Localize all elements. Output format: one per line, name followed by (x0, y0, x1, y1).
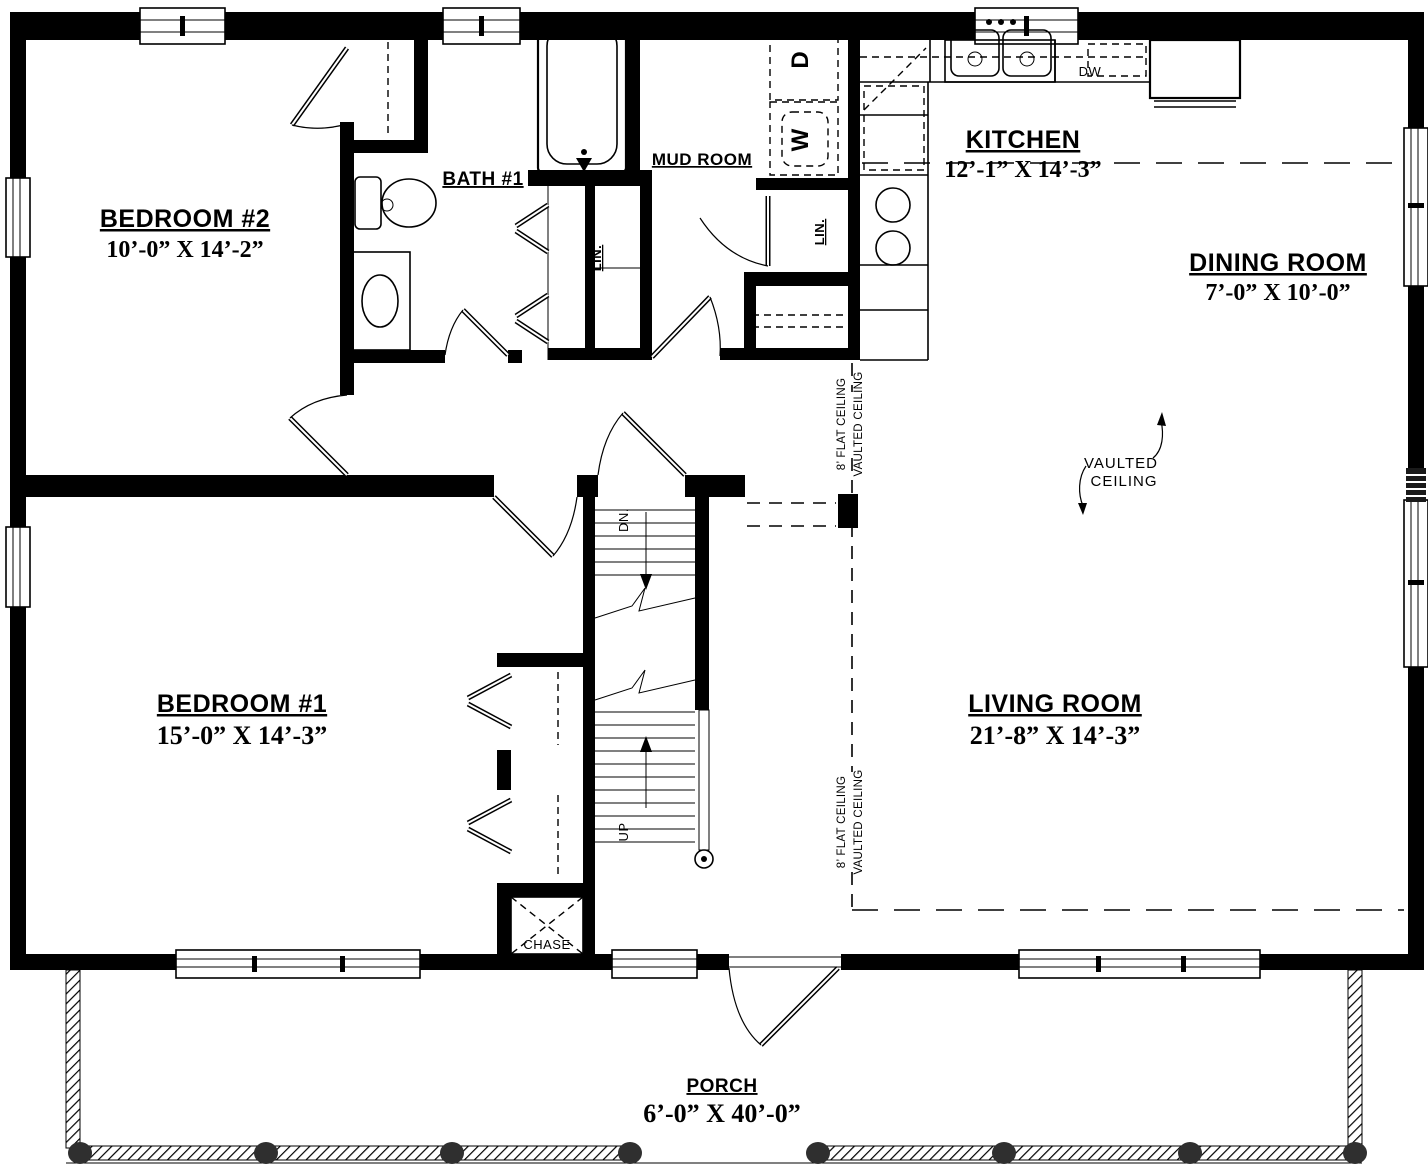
bath1-name: BATH #1 (442, 169, 523, 190)
ceiling-lines (747, 363, 1426, 910)
refrigerator-fixture (1088, 40, 1240, 107)
window-bedroom2-left (6, 178, 30, 257)
washer-label: W (787, 128, 814, 151)
vaulted-note-line1: VAULTED (1084, 455, 1158, 472)
wall-bedroom2-closet-south (340, 140, 428, 153)
ceiling-vaulted-label-1: VAULTED CEILING (853, 371, 865, 476)
ceiling-vaulted-label-2: VAULTED CEILING (853, 769, 865, 874)
dishwasher-label: DW (1079, 64, 1102, 79)
window-bath-top (443, 8, 520, 44)
mudroom-name: MUD ROOM (652, 150, 752, 169)
window-kitchen-top (975, 8, 1078, 44)
bedroom1-name: BEDROOM #1 (157, 690, 327, 718)
bedroom2-entry-door (290, 395, 347, 475)
vanity-sink-fixture (352, 252, 410, 350)
wall-bath-south-jamb (508, 350, 522, 363)
window-stair-front (612, 950, 697, 978)
wall-pantry-south (744, 348, 848, 360)
stair-arrow-down (640, 512, 652, 590)
bedroom1-entry-door (494, 497, 577, 556)
kitchen-name: KITCHEN (966, 126, 1081, 154)
stairs-down-label: DN. (616, 508, 631, 532)
living-dims: 21’-8” X 14’-3” (970, 721, 1140, 750)
porch-post (806, 1142, 830, 1164)
wall-jamb-center (577, 475, 598, 497)
ceiling-flat-label-1: 8’ FLAT CEILING (836, 378, 848, 470)
porch-name: PORCH (686, 1076, 757, 1097)
window-bedroom1-left (6, 527, 30, 607)
porch-rail-right (1348, 970, 1362, 1148)
bedroom1-dims: 15’-0” X 14’-3” (157, 721, 327, 750)
mudroom-door (652, 297, 720, 357)
wall-bedrooms-hall (26, 475, 494, 497)
vaulted-note-line2: CEILING (1090, 473, 1157, 490)
dryer-label: D (787, 51, 814, 68)
stair-break-line-upper (595, 588, 695, 618)
kitchen-dims: 12’-1” X 14’-3” (944, 157, 1101, 183)
wall-chase-west (497, 897, 511, 954)
bedroom2-dims: 10’-0” X 14’-2” (106, 237, 263, 263)
window-bedroom2-top (140, 8, 225, 44)
mudroom-linen-label: LIN. (812, 219, 827, 246)
bedroom2-closet-door (292, 48, 347, 128)
porch-post (618, 1142, 642, 1164)
wall-mudroom-door-jamb (720, 348, 752, 360)
toilet-fixture (355, 177, 436, 229)
wall-linen-south (548, 348, 652, 360)
window-living-front (1019, 950, 1260, 978)
wall-bath-south (340, 350, 445, 363)
mudroom-linen-door (700, 196, 768, 266)
window-living-right (1404, 500, 1428, 667)
stair-break-line-lower (595, 670, 695, 700)
porch-rail-bottom-right (818, 1146, 1355, 1160)
window-dining-right (1404, 128, 1428, 286)
porch-dims: 6’-0” X 40’-0” (643, 1099, 800, 1128)
wall-closet-post (497, 750, 511, 790)
bedroom2-name: BEDROOM #2 (100, 205, 270, 233)
wall-jamb-east (685, 475, 745, 497)
dining-name: DINING ROOM (1189, 249, 1367, 277)
porch-post (440, 1142, 464, 1164)
bath-door (445, 310, 508, 355)
wall-linen-divider (585, 186, 595, 360)
stair-arrow-up (640, 736, 652, 808)
porch (66, 970, 1367, 1164)
wall-stair-east (695, 497, 709, 710)
wall-chase-north (497, 883, 595, 897)
floor-plan-drawing: BEDROOM #2 10’-0” X 14’-2” BATH #1 MUD R… (0, 0, 1428, 1166)
right-wall-beam-marker (1406, 468, 1426, 502)
porch-post (992, 1142, 1016, 1164)
porch-post (1178, 1142, 1202, 1164)
stair-treads-down (595, 510, 695, 575)
wall-linen-east (640, 186, 652, 360)
ceiling-flat-label-2: 8’ FLAT CEILING (836, 776, 848, 868)
window-bedroom1-front (176, 950, 420, 978)
post-vault-line (838, 494, 858, 528)
wall-mudlinen-south (744, 272, 848, 286)
wall-bedroom2-closet-east (414, 12, 428, 146)
front-door-opening (729, 952, 841, 972)
wall-closet1-north (497, 653, 583, 667)
wall-mudroom-kitchen (848, 12, 860, 360)
floor-plan: BEDROOM #2 10’-0” X 14’-2” BATH #1 MUD R… (0, 0, 1428, 1166)
porch-rail-left (66, 970, 80, 1148)
porch-post (1343, 1142, 1367, 1164)
porch-post (68, 1142, 92, 1164)
range-fixture (876, 188, 910, 265)
porch-rail-bottom-left (73, 1146, 630, 1160)
wall-mudroom-west-upper (626, 12, 640, 170)
hall-linen-doors (516, 205, 548, 342)
upper-cabinet-dashed (864, 86, 924, 170)
wall-stair-west (583, 497, 595, 954)
front-door (729, 952, 841, 1045)
stair-handrail (695, 710, 713, 868)
chase-label: CHASE (523, 937, 570, 952)
porch-post (254, 1142, 278, 1164)
living-name: LIVING ROOM (968, 690, 1142, 718)
exterior-wall-left (10, 12, 26, 970)
stairs-up-label: UP (616, 822, 631, 841)
dining-dims: 7’-0” X 10’-0” (1205, 280, 1350, 306)
stair-door (598, 413, 685, 475)
hall-linen-label: LIN. (589, 245, 604, 272)
wall-mudlinen-north (756, 178, 848, 190)
kitchen-counters (860, 19, 1402, 360)
stair-treads-up (595, 712, 695, 842)
